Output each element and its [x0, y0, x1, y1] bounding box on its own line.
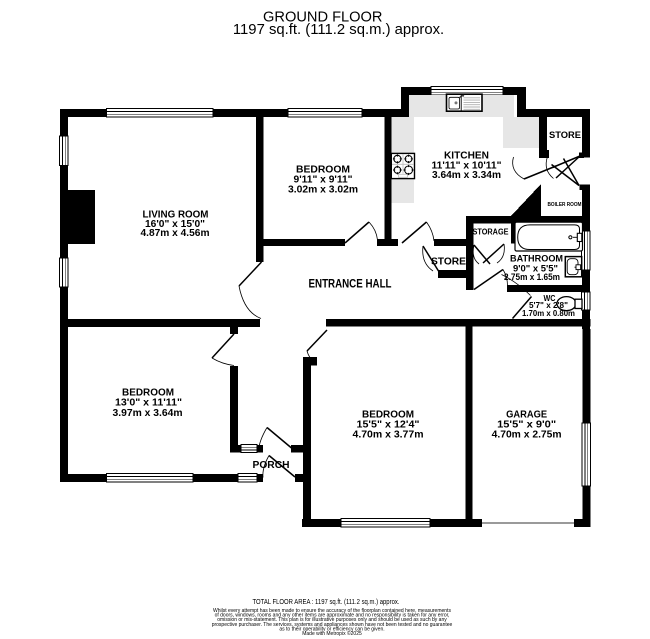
svg-text:STORE: STORE: [549, 130, 581, 141]
svg-text:1.70m x 0.80m: 1.70m x 0.80m: [522, 309, 575, 318]
svg-text:1197 sq.ft. (111.2 sq.m.) appr: 1197 sq.ft. (111.2 sq.m.) approx.: [233, 21, 444, 38]
svg-text:Made with Metropix ©2025: Made with Metropix ©2025: [302, 630, 362, 637]
svg-text:2.75m x 1.65m: 2.75m x 1.65m: [504, 272, 560, 282]
svg-text:BOILER ROOM: BOILER ROOM: [548, 202, 582, 208]
svg-text:STORAGE: STORAGE: [473, 227, 510, 236]
svg-text:3.02m x 3.02m: 3.02m x 3.02m: [288, 185, 358, 196]
svg-text:3.64m x 3.34m: 3.64m x 3.34m: [432, 170, 501, 181]
svg-text:4.70m x 3.77m: 4.70m x 3.77m: [353, 430, 424, 441]
svg-text:ENTRANCE HALL: ENTRANCE HALL: [309, 277, 392, 291]
svg-text:TOTAL FLOOR AREA : 1197 sq.ft.: TOTAL FLOOR AREA : 1197 sq.ft. (111.2 sq…: [253, 599, 400, 606]
svg-text:BATHROOM: BATHROOM: [510, 254, 563, 264]
svg-text:4.70m x 2.75m: 4.70m x 2.75m: [492, 430, 562, 441]
svg-text:3.97m x 3.64m: 3.97m x 3.64m: [113, 408, 183, 419]
svg-text:4.87m x 4.56m: 4.87m x 4.56m: [141, 228, 210, 239]
svg-text:PORCH: PORCH: [253, 460, 290, 471]
svg-text:STORE: STORE: [431, 256, 466, 267]
